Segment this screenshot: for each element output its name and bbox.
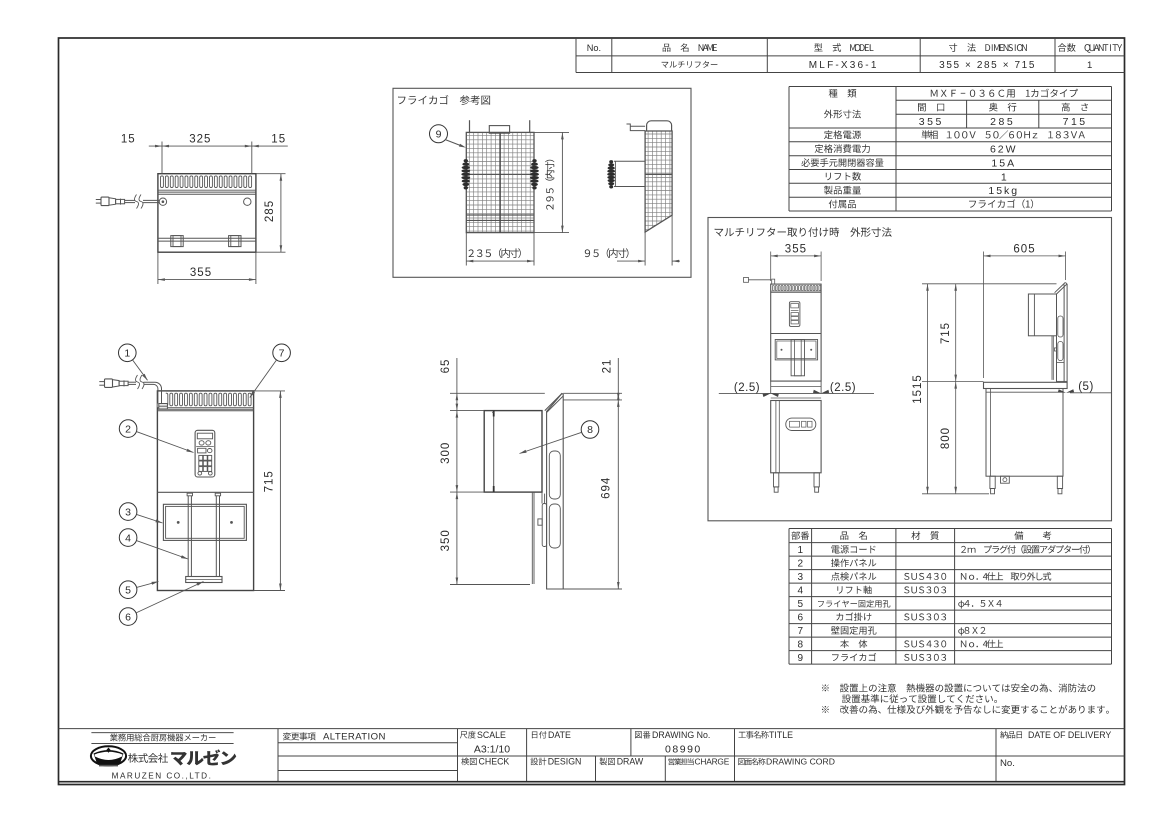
svg-text:1515: 1515	[912, 374, 924, 404]
svg-text:715: 715	[263, 470, 275, 492]
svg-text:285: 285	[264, 200, 276, 222]
svg-text:DRAWING CORD: DRAWING CORD	[766, 757, 835, 767]
svg-text:1: 1	[124, 348, 130, 360]
svg-text:8: 8	[798, 639, 804, 650]
svg-text:15kg: 15kg	[988, 185, 1019, 197]
svg-text:No.: No.	[1000, 758, 1015, 769]
svg-text:8: 8	[587, 424, 593, 436]
svg-text:6: 6	[798, 612, 804, 623]
svg-text:MLF-X36-1: MLF-X36-1	[809, 60, 879, 71]
svg-text:No.: No.	[587, 43, 601, 53]
svg-text:08990: 08990	[665, 743, 702, 755]
svg-text:DATE: DATE	[548, 730, 571, 740]
svg-text:9: 9	[436, 129, 442, 141]
svg-text:715: 715	[1063, 116, 1088, 128]
svg-text:605: 605	[1013, 244, 1035, 256]
svg-text:7: 7	[279, 348, 285, 360]
svg-text:7: 7	[798, 626, 804, 637]
svg-text:A3:1/10: A3:1/10	[474, 743, 510, 755]
svg-text:15A: 15A	[991, 158, 1016, 170]
svg-text:MARUZEN CO.,LTD.: MARUZEN CO.,LTD.	[112, 771, 213, 780]
svg-text:SCALE: SCALE	[477, 730, 506, 740]
svg-text:5: 5	[798, 599, 804, 610]
svg-text:9: 9	[798, 653, 804, 664]
svg-text:CHARGE: CHARGE	[695, 757, 730, 767]
svg-text:15: 15	[121, 134, 136, 146]
svg-text:800: 800	[940, 427, 952, 449]
svg-text:355: 355	[919, 116, 944, 128]
svg-text:(5): (5)	[1078, 381, 1094, 393]
svg-text:300: 300	[440, 442, 452, 464]
svg-text:355 × 285 × 715: 355 × 285 × 715	[939, 60, 1036, 71]
svg-text:285: 285	[990, 116, 1015, 128]
svg-text:1: 1	[798, 545, 804, 556]
svg-text:TITLE: TITLE	[769, 730, 793, 740]
svg-text:4: 4	[125, 532, 131, 544]
svg-text:1: 1	[1087, 60, 1092, 71]
svg-text:ALTERATION: ALTERATION	[323, 732, 386, 743]
svg-text:715: 715	[940, 322, 952, 344]
svg-text:CHECK: CHECK	[479, 757, 510, 767]
svg-text:694: 694	[600, 477, 612, 499]
svg-text:15: 15	[271, 134, 286, 146]
svg-text:355: 355	[190, 267, 212, 279]
svg-text:350: 350	[440, 529, 452, 551]
svg-text:DRAW: DRAW	[617, 757, 644, 767]
svg-text:62W: 62W	[990, 144, 1018, 156]
svg-text:2: 2	[798, 558, 804, 569]
svg-text:5: 5	[125, 584, 131, 596]
svg-text:325: 325	[189, 134, 211, 146]
svg-text:65: 65	[440, 359, 452, 374]
svg-text:(2.5): (2.5)	[830, 382, 856, 394]
svg-text:DATE OF DELIVERY: DATE OF DELIVERY	[1028, 730, 1111, 740]
svg-text:3: 3	[798, 572, 804, 583]
svg-text:2: 2	[125, 423, 131, 435]
svg-text:1: 1	[1001, 171, 1007, 183]
svg-text:3: 3	[125, 506, 131, 518]
svg-text:DESIGN: DESIGN	[548, 757, 582, 767]
svg-text:4: 4	[798, 585, 804, 596]
svg-text:DRAWING No.: DRAWING No.	[652, 730, 710, 740]
svg-text:21: 21	[602, 359, 614, 374]
svg-text:(2.5): (2.5)	[734, 382, 760, 394]
svg-text:6: 6	[125, 611, 131, 623]
svg-text:355: 355	[785, 244, 807, 256]
